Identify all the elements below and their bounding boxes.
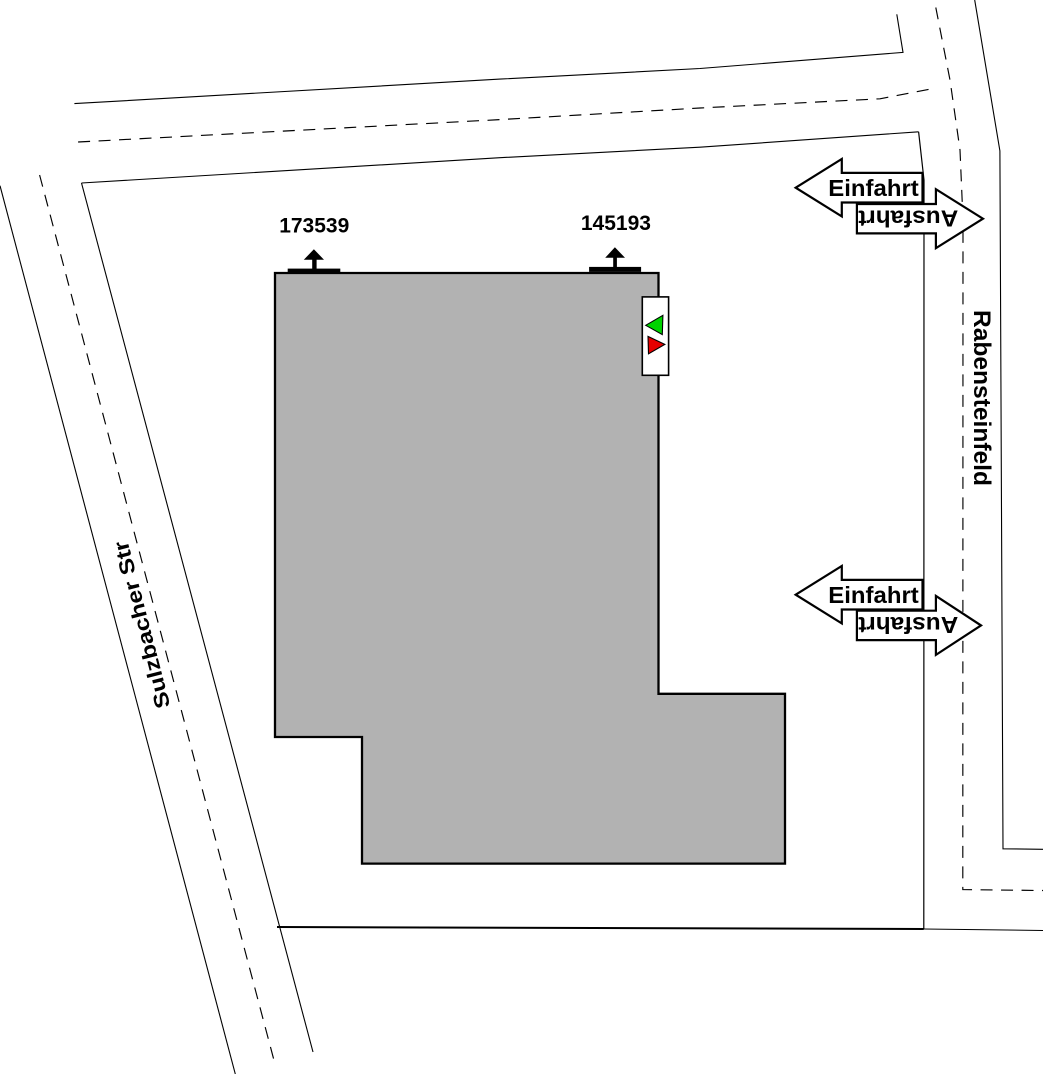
svg-text:Rabensteinfeld: Rabensteinfeld	[968, 310, 995, 486]
svg-text:Ausfahrt: Ausfahrt	[858, 205, 958, 231]
svg-text:173539: 173539	[279, 214, 349, 237]
svg-text:145193: 145193	[581, 212, 651, 235]
svg-text:Einfahrt: Einfahrt	[828, 175, 919, 201]
svg-text:Einfahrt: Einfahrt	[828, 582, 919, 608]
svg-text:Ausfahrt: Ausfahrt	[858, 612, 958, 638]
